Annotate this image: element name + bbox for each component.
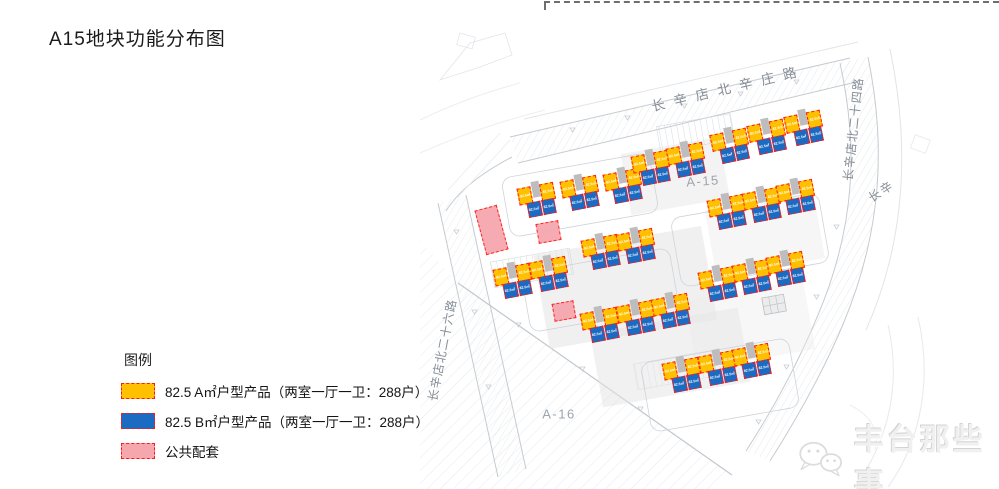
unit-area-label: 82.5㎡: [642, 322, 653, 327]
unit-area-label: 82.5㎡: [810, 132, 821, 138]
unit-area-label: 82.5㎡: [710, 375, 721, 380]
unit-area-label: 82.5㎡: [607, 256, 618, 261]
unit-area-label: 82.5㎡: [532, 267, 543, 272]
unit-area-label: 82.5㎡: [769, 262, 780, 267]
building: 82.5㎡82.5㎡82.5㎡82.5㎡: [731, 341, 775, 382]
unit-area-label: 82.5㎡: [773, 141, 784, 147]
unit-area-label: 82.5㎡: [791, 258, 802, 263]
type-b-unit: 82.5㎡: [756, 359, 772, 376]
type-b-unit: 82.5㎡: [785, 198, 801, 215]
legend: 图例 82.5 A㎡户型产品（两室一厅一卫：288户） 82.5 B㎡户型产品（…: [121, 350, 429, 472]
unit-area-label: 82.5㎡: [518, 270, 529, 275]
unit-area-label: 82.5㎡: [691, 149, 702, 154]
unit-area-label: 82.5㎡: [643, 175, 654, 180]
type-b-unit: 82.5㎡: [640, 169, 656, 186]
unit-area-label: 82.5㎡: [606, 179, 617, 184]
unit-area-label: 82.5㎡: [788, 204, 799, 209]
building: 82.5㎡82.5㎡82.5㎡82.5㎡: [615, 226, 659, 267]
unit-area-label: 82.5㎡: [757, 350, 768, 355]
unit-area-label: 82.5㎡: [736, 150, 747, 156]
unit-area-label: 82.5㎡: [615, 193, 626, 198]
type-b-swatch: [121, 413, 155, 429]
top-dashed-line: [544, 1, 999, 3]
type-b-unit: 82.5㎡: [553, 272, 569, 289]
unit-area-label: 82.5㎡: [520, 193, 531, 198]
type-b-unit: 82.5㎡: [790, 267, 806, 284]
unit-area-label: 82.5㎡: [654, 304, 665, 309]
unit-area-label: 82.5㎡: [809, 117, 820, 123]
legend-item-amenity: 公共配套: [121, 442, 429, 459]
page-title: A15地块功能分布图: [49, 24, 226, 51]
type-b-unit: 82.5㎡: [625, 319, 641, 336]
unit-area-label: 82.5㎡: [754, 212, 765, 217]
unit-area-label: 82.5㎡: [657, 172, 668, 177]
unit-area-label: 82.5㎡: [541, 281, 552, 286]
unit-area-label: 82.5㎡: [750, 130, 761, 136]
unit-area-label: 82.5㎡: [529, 207, 540, 212]
unit-area-label: 82.5㎡: [542, 189, 553, 194]
unit-area-label: 82.5㎡: [555, 278, 566, 283]
unit-area-label: 82.5㎡: [688, 379, 699, 384]
unit-area-label: 82.5㎡: [701, 277, 712, 282]
unit-area-label: 82.5㎡: [732, 201, 743, 206]
unit-area-label: 82.5㎡: [733, 216, 744, 221]
type-b-unit: 82.5㎡: [640, 244, 656, 261]
type-b-unit: 82.5㎡: [526, 201, 542, 218]
unit-area-label: 82.5㎡: [724, 288, 735, 293]
unit-area-label: 82.5㎡: [713, 139, 724, 145]
unit-area-label: 82.5㎡: [629, 190, 640, 195]
type-b-unit: 82.5㎡: [771, 135, 787, 152]
unit-area-label: 82.5㎡: [585, 182, 596, 187]
legend-heading: 图例: [124, 350, 429, 370]
watermark-text: 丰台那些事: [854, 415, 999, 489]
unit-area-label: 82.5㎡: [710, 291, 721, 296]
site-map: 丰台那些事 82.5㎡82.5㎡82.5㎡82.5㎡82.5㎡82.5㎡82.5…: [420, 25, 999, 489]
unit-area-label: 82.5㎡: [628, 253, 639, 258]
amenity-swatch: [121, 443, 155, 459]
unit-area-label: 82.5㎡: [801, 186, 812, 191]
unit-area-label: 82.5㎡: [692, 164, 703, 169]
unit-area-label: 82.5㎡: [796, 135, 807, 141]
type-b-unit: 82.5㎡: [517, 279, 533, 296]
unit-area-label: 82.5㎡: [687, 364, 698, 369]
unit-area-label: 82.5㎡: [586, 197, 597, 202]
type-b-unit: 82.5㎡: [775, 270, 791, 287]
unit-area-label: 82.5㎡: [665, 368, 676, 373]
public-amenity-block: [535, 220, 561, 244]
unit-area-label: 82.5㎡: [584, 245, 595, 250]
type-b-unit: 82.5㎡: [671, 376, 687, 393]
unit-area-label: 82.5㎡: [744, 284, 755, 289]
type-b-label: 82.5 B㎡户型产品（两室一厅一卫：288户）: [165, 411, 429, 431]
public-amenity-block: [552, 300, 577, 322]
type-b-unit: 82.5㎡: [716, 213, 732, 230]
building: 82.5㎡82.5㎡82.5㎡82.5㎡: [775, 177, 819, 218]
unit-area-label: 82.5㎡: [641, 235, 652, 240]
unit-area-label: 82.5㎡: [605, 314, 616, 319]
type-b-unit: 82.5㎡: [741, 362, 757, 379]
type-b-unit: 82.5㎡: [612, 187, 628, 204]
unit-area-label: 82.5㎡: [676, 300, 687, 305]
unit-area-label: 82.5㎡: [724, 372, 735, 377]
unit-area-label: 82.5㎡: [802, 201, 813, 206]
unit-area-label: 82.5㎡: [554, 263, 565, 268]
unit-area-label: 82.5㎡: [496, 274, 507, 279]
building: 82.5㎡82.5㎡82.5㎡82.5㎡: [516, 180, 560, 221]
type-b-unit: 82.5㎡: [707, 285, 723, 302]
building: 82.5㎡82.5㎡82.5㎡82.5㎡: [765, 249, 809, 290]
type-b-unit: 82.5㎡: [590, 253, 606, 270]
unit-area-label: 82.5㎡: [663, 318, 674, 323]
type-b-unit: 82.5㎡: [707, 369, 723, 386]
unit-area-label: 82.5㎡: [619, 239, 630, 244]
legend-item-type-a: 82.5 A㎡户型产品（两室一厅一卫：288户）: [121, 382, 429, 399]
type-b-unit: 82.5㎡: [675, 309, 691, 326]
unit-area-label: 82.5㎡: [593, 259, 604, 264]
type-b-unit: 82.5㎡: [538, 275, 554, 292]
wechat-icon: [795, 436, 846, 482]
unit-area-label: 82.5㎡: [735, 354, 746, 359]
unit-area-label: 82.5㎡: [768, 209, 779, 214]
building: 82.5㎡82.5㎡82.5㎡82.5㎡: [559, 173, 603, 214]
type-b-unit: 82.5㎡: [741, 278, 757, 295]
unit-area-label: 82.5㎡: [634, 161, 645, 166]
unit-area-label: 82.5㎡: [519, 285, 530, 290]
unit-area-label: 82.5㎡: [758, 281, 769, 286]
slide-page: A15地块功能分布图 图例 82.5 A㎡户型产品（两室一厅一卫：288户） 8…: [0, 0, 999, 489]
unit-area-label: 82.5㎡: [735, 270, 746, 275]
unit-area-label: 82.5㎡: [719, 219, 730, 224]
parcel-label: A-16: [542, 407, 575, 422]
type-b-unit: 82.5㎡: [751, 206, 767, 223]
unit-area-label: 82.5㎡: [744, 368, 755, 373]
type-b-unit: 82.5㎡: [589, 326, 605, 343]
unit-area-label: 82.5㎡: [674, 382, 685, 387]
unit-area-label: 82.5㎡: [606, 241, 617, 246]
type-b-unit: 82.5㎡: [541, 198, 557, 215]
type-a-swatch: [121, 383, 155, 399]
legend-item-type-b: 82.5 B㎡户型产品（两室一厅一卫：288户）: [121, 412, 429, 429]
unit-area-label: 82.5㎡: [606, 329, 617, 334]
type-a-label: 82.5 A㎡户型产品（两室一厅一卫：288户）: [165, 381, 428, 401]
unit-area-label: 82.5㎡: [677, 315, 688, 320]
unit-area-label: 82.5㎡: [735, 135, 746, 141]
type-b-unit: 82.5㎡: [808, 126, 824, 143]
parcel-label: A-15: [686, 172, 720, 189]
unit-area-label: 82.5㎡: [583, 318, 594, 323]
unit-area-label: 82.5㎡: [628, 325, 639, 330]
unit-area-label: 82.5㎡: [619, 311, 630, 316]
type-b-unit: 82.5㎡: [660, 312, 676, 329]
amenity-label: 公共配套: [165, 441, 219, 461]
unit-area-label: 82.5㎡: [641, 307, 652, 312]
unit-area-label: 82.5㎡: [792, 273, 803, 278]
type-b-unit: 82.5㎡: [584, 191, 600, 208]
unit-area-label: 82.5㎡: [759, 144, 770, 150]
unit-area-label: 82.5㎡: [543, 204, 554, 209]
type-b-unit: 82.5㎡: [604, 323, 620, 340]
unit-area-label: 82.5㎡: [745, 198, 756, 203]
unit-area-label: 82.5㎡: [710, 205, 721, 210]
watermark: 丰台那些事: [795, 415, 999, 489]
unit-area-label: 82.5㎡: [669, 153, 680, 158]
type-b-unit: 82.5㎡: [625, 247, 641, 264]
unit-area-label: 82.5㎡: [778, 276, 789, 281]
unit-area-label: 82.5㎡: [592, 332, 603, 337]
building: 82.5㎡82.5㎡82.5㎡82.5㎡: [650, 291, 694, 332]
unit-area-label: 82.5㎡: [772, 126, 783, 132]
type-b-unit: 82.5㎡: [569, 194, 585, 211]
unit-area-label: 82.5㎡: [505, 288, 516, 293]
unit-area-label: 82.5㎡: [779, 190, 790, 195]
unit-area-label: 82.5㎡: [572, 200, 583, 205]
unit-area-label: 82.5㎡: [758, 365, 769, 370]
type-b-unit: 82.5㎡: [502, 282, 518, 299]
unit-area-label: 82.5㎡: [701, 361, 712, 366]
type-b-unit: 82.5㎡: [734, 144, 750, 161]
unit-area-label: 82.5㎡: [642, 250, 653, 255]
top-dashed-line-tick: [544, 1, 546, 10]
unit-area-label: 82.5㎡: [722, 153, 733, 159]
unit-area-label: 82.5㎡: [787, 121, 798, 127]
unit-area-label: 82.5㎡: [656, 157, 667, 162]
unit-area-label: 82.5㎡: [678, 167, 689, 172]
building: 82.5㎡82.5㎡82.5㎡82.5㎡: [528, 254, 572, 295]
unit-area-label: 82.5㎡: [563, 186, 574, 191]
type-b-unit: 82.5㎡: [686, 373, 702, 390]
type-b-unit: 82.5㎡: [800, 195, 816, 212]
